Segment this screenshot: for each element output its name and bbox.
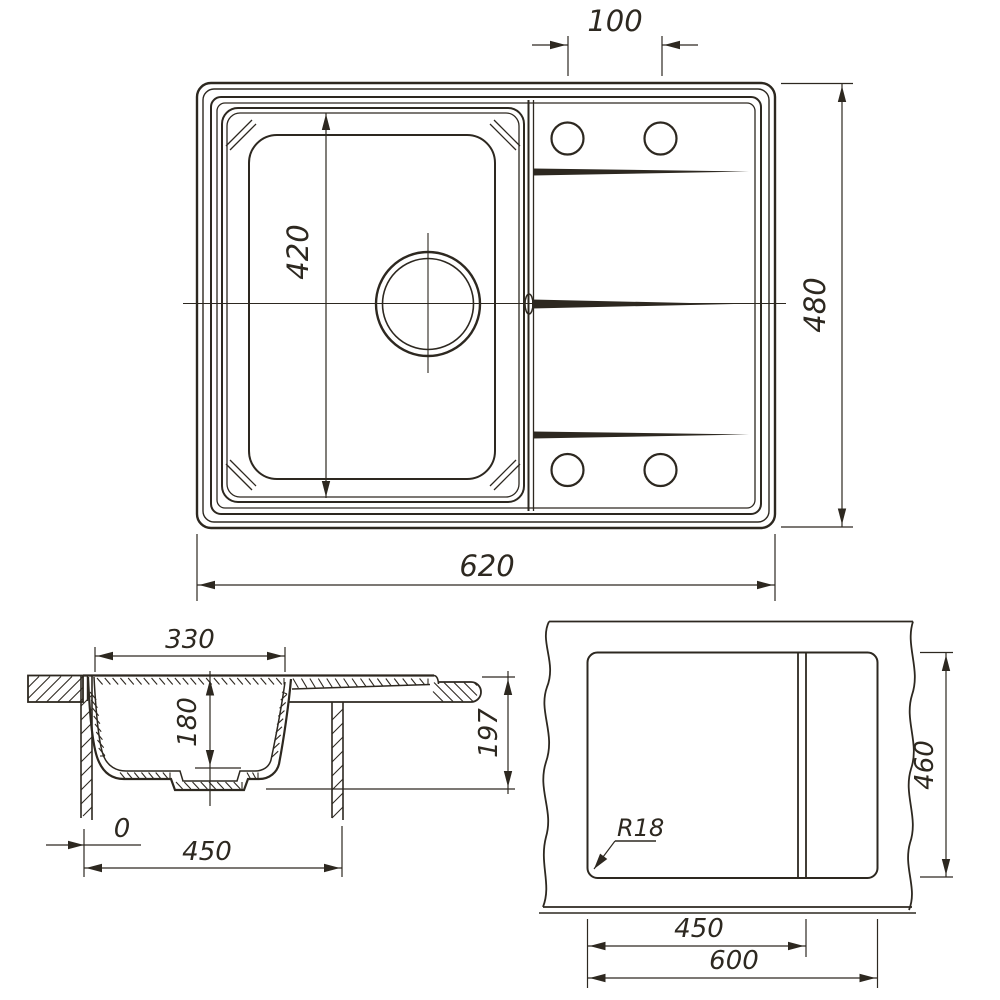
hatch-line (261, 678, 267, 685)
hatch-line (36, 677, 61, 702)
hatch-line (454, 683, 473, 702)
hatch-line (386, 679, 391, 686)
hatch-line (332, 765, 343, 776)
hatch-line (281, 694, 287, 700)
hatch-line (156, 773, 161, 779)
hatch-line (176, 782, 183, 789)
hatch-line (163, 773, 168, 779)
hatch-line (183, 678, 189, 685)
hatch-line (81, 765, 92, 776)
sink-outer-edge (197, 83, 775, 528)
dim-label-r18: R18 (617, 814, 664, 842)
dim-label-100: 100 (587, 4, 642, 38)
hatch-line (361, 679, 366, 687)
hatch-line (332, 807, 343, 818)
hatch-line (58, 677, 83, 702)
hatch-line (120, 678, 126, 685)
hatch-line (214, 678, 220, 685)
hatch-line (222, 678, 228, 685)
hatch-line (97, 678, 103, 685)
hatch-line (167, 678, 173, 685)
hatch-line (318, 679, 323, 688)
hatch-line (332, 779, 343, 790)
hatch-line (83, 807, 92, 816)
hatch-line (369, 679, 374, 687)
hatch-line (127, 773, 132, 779)
hatch-line (332, 751, 343, 762)
hatch-line (81, 723, 92, 734)
bowl-corner-chamfers (226, 120, 520, 490)
hatch-line (47, 677, 72, 702)
hatch-line (134, 773, 139, 779)
hatch-line (28, 677, 39, 688)
faucet-hole (645, 454, 677, 486)
hatch-line (217, 782, 224, 789)
hatch-line (253, 773, 256, 779)
dim-label-180: 180 (173, 697, 203, 747)
sink-technical-drawing: 100 420 620 480 (0, 0, 1000, 1000)
hatch-line (136, 678, 142, 685)
hatch-line (253, 678, 259, 685)
technical-drawing-page: 100 420 620 480 (0, 0, 1000, 1000)
hatch-line (464, 683, 477, 696)
break-line-left (543, 622, 550, 908)
hatch-line (152, 678, 158, 685)
hatch-line (81, 779, 92, 790)
hatch-line (149, 773, 154, 779)
hatch-line (310, 679, 315, 688)
dim-overall-height: 197 (266, 671, 515, 794)
hatch-line (403, 679, 408, 686)
dim-bowl-width: 330 (95, 625, 285, 672)
hatch-line (280, 702, 286, 708)
hatch-line (434, 683, 453, 702)
dim-bowl-depth: 180 (173, 671, 241, 806)
hatch-line (226, 782, 233, 789)
dim-label-620: 620 (459, 549, 514, 583)
dim-label-420: 420 (281, 224, 315, 279)
dim-divider-offset: 450 (588, 914, 807, 988)
hatch-line (105, 678, 111, 685)
hatch-line (193, 782, 200, 789)
hatch-line (444, 683, 463, 702)
hatch-line (268, 678, 274, 685)
hatch-line (276, 678, 282, 685)
hatch-line (377, 679, 382, 687)
drainboard-groove (533, 432, 749, 439)
hatch-line (433, 692, 443, 702)
dim-label-330: 330 (165, 625, 215, 655)
hatch-line (141, 773, 146, 779)
hatch-line (327, 679, 332, 688)
hatch-line (344, 679, 349, 687)
hatch-line (191, 678, 197, 685)
hatch-line (332, 709, 343, 720)
cutout-outline (588, 653, 878, 879)
hatch-line (159, 678, 165, 685)
bowl-bottom (249, 135, 495, 479)
hatch-line (81, 751, 92, 762)
dim-overall-depth: 480 (781, 84, 853, 528)
hatch-line (144, 678, 150, 685)
dim-label-450-cutout: 450 (674, 914, 724, 944)
hatch-line (201, 782, 208, 789)
hatch-line (332, 723, 343, 734)
hatch-line (81, 737, 92, 748)
hatch-line (245, 678, 251, 685)
top-view: 100 420 620 480 (183, 4, 853, 601)
dim-overall-width: 620 (197, 534, 775, 601)
dim-label-480: 480 (798, 277, 832, 332)
bowl-opening (222, 108, 524, 502)
dim-cutout-depth: 460 (910, 653, 953, 878)
hatch-line (175, 678, 181, 685)
hatch-line (229, 678, 235, 685)
hatch-line (332, 737, 343, 748)
hatch-line (128, 678, 134, 685)
hatch-line (352, 679, 357, 687)
faucet-hole (552, 454, 584, 486)
slab-underside (292, 685, 430, 690)
dim-label-197: 197 (474, 708, 504, 758)
dim-label-450-cabinet: 450 (182, 837, 232, 867)
hatch-line (184, 782, 191, 789)
hatch-line (113, 678, 119, 685)
hatch-line (411, 679, 416, 686)
drainboard-groove (533, 169, 749, 176)
hatch-line (301, 679, 306, 688)
hatch-line (278, 711, 284, 717)
hatch-line (28, 677, 50, 699)
hatch-line (237, 678, 243, 685)
cutout-view: 460 R18 450 600 (539, 622, 953, 989)
dim-label-600: 600 (709, 946, 759, 976)
rim-inner-edge (211, 97, 761, 514)
hatch-line (81, 793, 92, 804)
hatch-line (120, 773, 125, 779)
hatch-line (335, 679, 340, 687)
hatch-line (332, 793, 343, 804)
dim-faucet-spacing: 100 (532, 4, 698, 76)
dim-cutout-width: 600 (588, 919, 878, 988)
hatch-line (234, 782, 241, 789)
faucet-hole (645, 123, 677, 155)
section-view: 330 180 197 0 (28, 625, 515, 877)
hatch-line (293, 679, 298, 688)
hatch-line (247, 773, 250, 779)
dim-bowl-length: 420 (281, 113, 330, 498)
dim-label-460: 460 (910, 740, 940, 790)
hatch-line (198, 678, 204, 685)
hatch-line (394, 679, 399, 686)
dim-label-0: 0 (114, 814, 131, 844)
faucet-hole (552, 123, 584, 155)
corner-radius-callout: R18 (594, 814, 664, 869)
